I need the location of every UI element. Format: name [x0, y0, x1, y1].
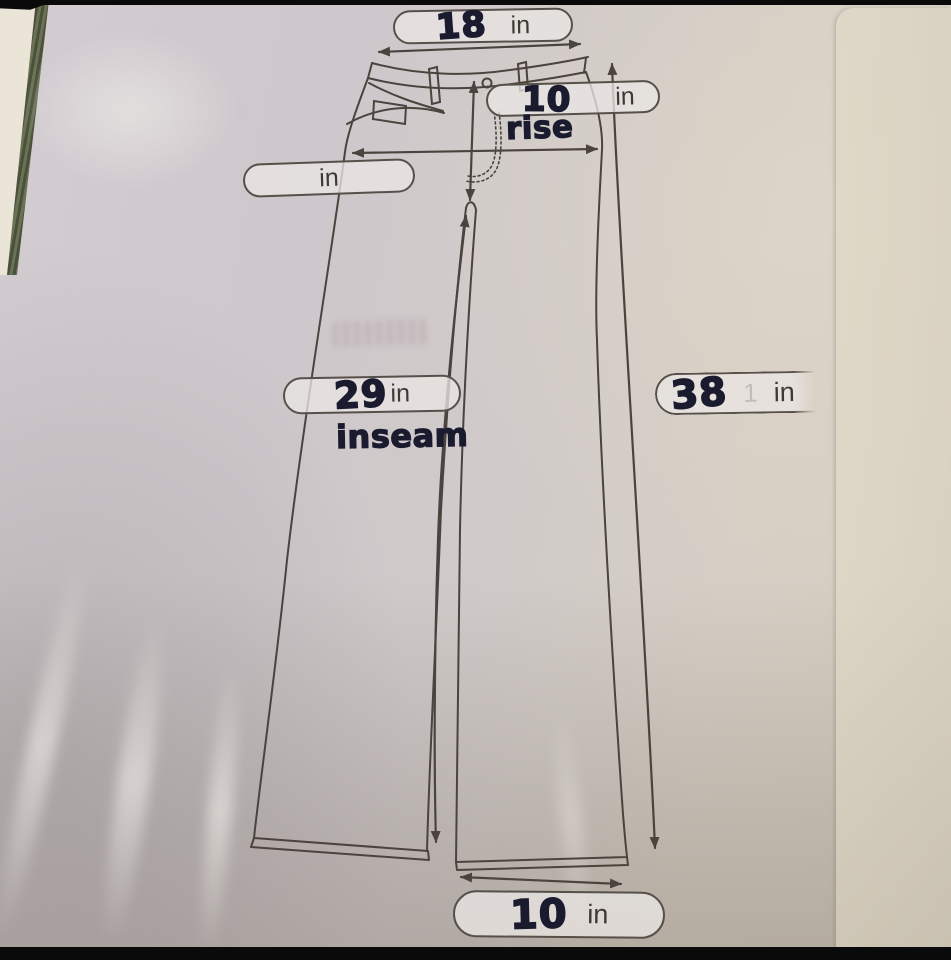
- hip-width-arrow: [353, 149, 597, 153]
- rise-label: rise: [505, 112, 573, 145]
- waist-unit: in: [510, 13, 530, 38]
- hip-measurement-pill: in: [242, 158, 415, 198]
- leg-opening-arrow: [461, 877, 621, 884]
- length-ghost-digit: 1: [743, 380, 758, 406]
- photo-letterbox-bottom: [0, 947, 951, 960]
- leg-opening-value: 10: [509, 894, 568, 935]
- right-leg-outline: [456, 72, 628, 870]
- inseam-label: inseam: [336, 419, 469, 453]
- hip-unit: in: [319, 165, 339, 191]
- length-arrow: [612, 64, 655, 848]
- length-value: 38: [669, 372, 728, 416]
- waist-measurement-pill: 18 in: [393, 7, 574, 44]
- front-pocket: [347, 83, 444, 124]
- photo-of-jeans-measurement-sheet: 18 in 10 in rise in 29 in inseam 38 1 in…: [0, 0, 951, 960]
- length-unit: in: [774, 378, 795, 405]
- length-measurement-pill: 38 1 in: [655, 371, 818, 416]
- leg-opening-unit: in: [587, 901, 608, 928]
- jeans-diagram: [0, 0, 951, 960]
- waist-value: 18: [435, 7, 488, 45]
- leg-opening-measurement-pill: 10 in: [453, 890, 665, 939]
- inseam-arrow: [435, 216, 466, 842]
- rise-unit: in: [615, 84, 635, 110]
- waist-width-arrow: [379, 44, 580, 52]
- inseam-measurement-pill: 29 in: [283, 374, 462, 414]
- inseam-unit: in: [390, 381, 410, 406]
- crotch-seam: [466, 202, 476, 210]
- photo-letterbox-top: [0, 0, 951, 5]
- inseam-value: 29: [333, 375, 388, 415]
